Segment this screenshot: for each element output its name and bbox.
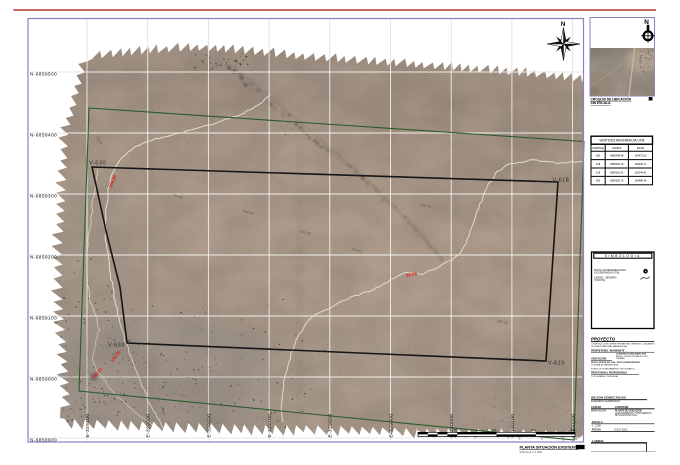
- svg-text:PROFESIONAL RESPONSABLE: PROFESIONAL RESPONSABLE: [591, 371, 627, 374]
- svg-text:NORTE: NORTE: [612, 146, 622, 150]
- svg-text:V-618: V-618: [553, 178, 570, 184]
- svg-text:(COORDENADAS UTM): (COORDENADAS UTM): [594, 272, 619, 275]
- svg-text:CAMINO - SENDERO: CAMINO - SENDERO: [594, 277, 617, 280]
- svg-text:E-329900: E-329900: [388, 414, 393, 438]
- svg-text:E-329400: E-329400: [85, 414, 90, 438]
- svg-text:ESCALA: ESCALA: [592, 420, 603, 424]
- svg-text:ESCALA 1:1.000: ESCALA 1:1.000: [520, 450, 543, 454]
- svg-text:N-6859300: N-6859300: [30, 193, 57, 198]
- svg-text:633: 633: [596, 180, 601, 183]
- svg-text:E-329600: E-329600: [206, 414, 211, 438]
- svg-text:N-6859400: N-6859400: [30, 132, 57, 137]
- svg-text:N-6859200: N-6859200: [30, 254, 57, 259]
- svg-text:1 : 2.500: 1 : 2.500: [592, 425, 602, 427]
- svg-text:619: 619: [596, 171, 601, 174]
- svg-text:VERTICES REFERENCIA UTM: VERTICES REFERENCIA UTM: [599, 139, 644, 143]
- svg-text:330236.71: 330236.71: [635, 163, 647, 166]
- svg-text:N-6859100: N-6859100: [30, 315, 57, 320]
- svg-text:INGENIERO GEOMENSOR: INGENIERO GEOMENSOR: [591, 401, 620, 403]
- svg-text:329488.46: 329488.46: [635, 180, 647, 183]
- svg-text:PROPIETARIO / MANDANTE: PROPIETARIO / MANDANTE: [591, 349, 625, 352]
- svg-text:6859348.98: 6859348.98: [610, 155, 624, 158]
- svg-text:UBICACION: UBICACION: [591, 357, 606, 361]
- svg-text:MARIA ELENA: MARIA ELENA: [591, 409, 607, 412]
- svg-text:329473.05: 329473.05: [635, 155, 647, 158]
- svg-text:ESTE: ESTE: [637, 146, 644, 150]
- svg-text:JULIO 2022: JULIO 2022: [614, 428, 628, 431]
- svg-text:6859165.76: 6859165.76: [610, 180, 624, 183]
- svg-text:CONSTRUCCION CIERRE PERIMETRAL: CONSTRUCCION CIERRE PERIMETRAL TERRENO C…: [591, 342, 655, 345]
- svg-text:SIN ESCALA: SIN ESCALA: [591, 101, 612, 105]
- svg-text:N: N: [561, 21, 566, 28]
- svg-text:V-619: V-619: [548, 361, 565, 367]
- svg-text:V-630: V-630: [89, 161, 106, 167]
- svg-text:CALAMA: CALAMA: [616, 357, 625, 360]
- svg-text:PUNTO GEOREFERENCIADO: PUNTO GEOREFERENCIADO: [594, 269, 626, 272]
- svg-text:200m: 200m: [570, 428, 577, 432]
- svg-text:WILSON GOMEZ ROJAS: WILSON GOMEZ ROJAS: [591, 395, 626, 399]
- svg-text:(TROCHA): (TROCHA): [594, 279, 605, 282]
- svg-text:TOPOGRAFIA Y GEODESIA: TOPOGRAFIA Y GEODESIA: [591, 375, 618, 378]
- svg-text:FECHA: FECHA: [592, 427, 601, 431]
- svg-text:E-329800: E-329800: [328, 414, 333, 438]
- svg-text:6859345.16: 6859345.16: [610, 163, 624, 166]
- svg-text:CONTIENE: CONTIENE: [615, 405, 629, 409]
- svg-text:618: 618: [596, 163, 601, 166]
- svg-text:CIUDAD: CIUDAD: [591, 405, 601, 409]
- svg-text:SITUACION ACTUAL: SITUACION ACTUAL: [615, 414, 638, 417]
- svg-text:630: 630: [596, 155, 601, 158]
- svg-text:100: 100: [492, 428, 497, 432]
- svg-text:PLANTA SITUACIÓN EXISTENTE: PLANTA SITUACIÓN EXISTENTE: [520, 445, 581, 450]
- svg-text:E-329700: E-329700: [267, 414, 272, 438]
- svg-text:V-633: V-633: [108, 343, 125, 349]
- svg-text:CLUB AERONATURAL MARIA ELENA: CLUB AERONATURAL MARIA ELENA: [591, 345, 627, 348]
- svg-text:E-329500: E-329500: [146, 414, 151, 438]
- svg-text:330244.41: 330244.41: [635, 171, 647, 174]
- svg-text:6859160.41: 6859160.41: [610, 171, 624, 174]
- svg-text:PLANO DE LEVANTAMIENTO TOPOGRA: PLANO DE LEVANTAMIENTO TOPOGRAFICO: [591, 367, 636, 370]
- svg-text:VERTICE: VERTICE: [592, 146, 604, 150]
- svg-text:COMUNA DE MARIA ELENA: COMUNA DE MARIA ELENA: [591, 363, 619, 366]
- svg-text:SIMBOLOGIA: SIMBOLOGIA: [605, 254, 641, 258]
- svg-text:N-6859000: N-6859000: [30, 376, 57, 381]
- svg-text:N-6859500: N-6859500: [30, 71, 57, 76]
- svg-text:150: 150: [531, 428, 536, 432]
- svg-text:PROYECTO: PROYECTO: [591, 336, 616, 341]
